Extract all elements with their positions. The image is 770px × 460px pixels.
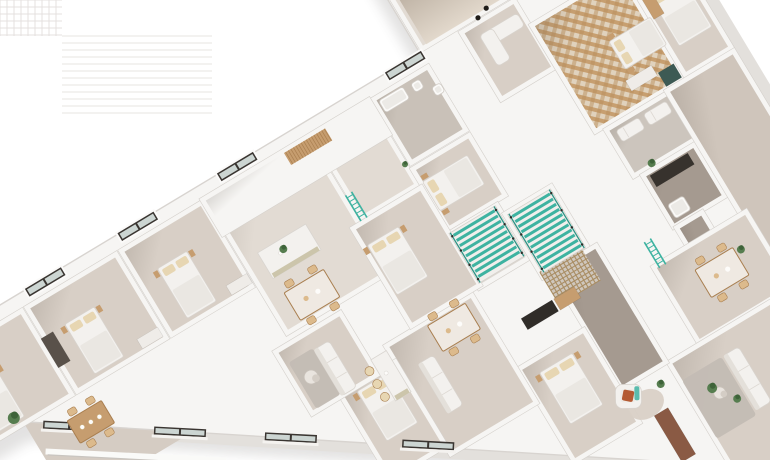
floor-plan-stage: [0, 0, 770, 460]
floor-plan-3d-render: [0, 0, 770, 460]
